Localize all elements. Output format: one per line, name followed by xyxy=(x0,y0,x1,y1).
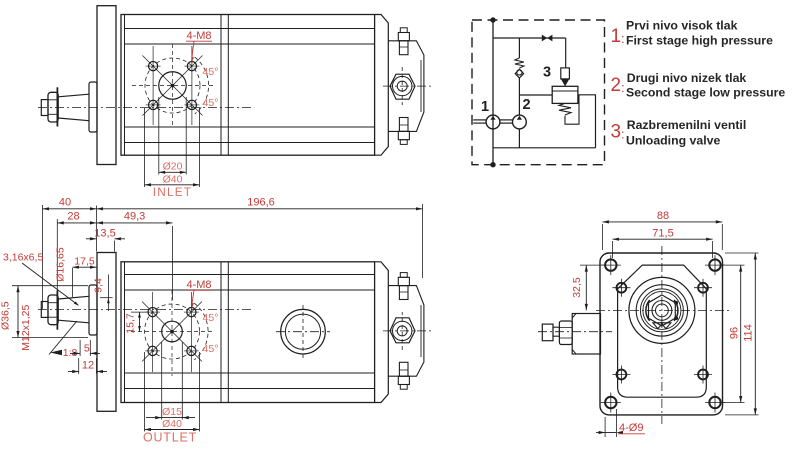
svg-text:49,3: 49,3 xyxy=(124,211,145,223)
svg-text:2: 2 xyxy=(611,75,622,96)
svg-text:196,6: 196,6 xyxy=(247,196,275,208)
svg-text:40: 40 xyxy=(59,196,71,208)
svg-text:45°: 45° xyxy=(203,343,219,355)
svg-text:1: 1 xyxy=(611,26,622,47)
svg-text:3,16x6,5: 3,16x6,5 xyxy=(3,252,43,264)
svg-text:Drugi nivo nizek tlak: Drugi nivo nizek tlak xyxy=(627,71,747,85)
svg-text:17,5: 17,5 xyxy=(74,256,95,268)
svg-text:Ø15: Ø15 xyxy=(162,406,182,418)
svg-text:96: 96 xyxy=(728,327,740,339)
svg-text:Second stage low pressure: Second stage low pressure xyxy=(626,85,785,99)
svg-text:4-M8: 4-M8 xyxy=(186,279,211,291)
svg-text:4-Ø9: 4-Ø9 xyxy=(619,422,643,434)
svg-text:45°: 45° xyxy=(203,66,219,78)
svg-text::: : xyxy=(621,127,625,142)
svg-text:2: 2 xyxy=(522,97,530,113)
svg-text:M12x1,25: M12x1,25 xyxy=(20,304,32,350)
svg-text:71,5: 71,5 xyxy=(652,228,673,240)
svg-text:114: 114 xyxy=(743,324,755,342)
svg-text:First stage high pressure: First stage high pressure xyxy=(626,33,773,47)
svg-text:45°: 45° xyxy=(203,312,219,324)
svg-text:Ø36,5: Ø36,5 xyxy=(0,301,11,330)
svg-text:Ø40: Ø40 xyxy=(163,173,183,185)
svg-text:15,7: 15,7 xyxy=(125,313,137,334)
svg-text:Unloading valve: Unloading valve xyxy=(626,133,720,147)
svg-text:1: 1 xyxy=(481,99,489,115)
svg-text:Ø40: Ø40 xyxy=(162,418,182,430)
svg-text:3: 3 xyxy=(543,65,551,81)
svg-text:28: 28 xyxy=(67,211,79,223)
svg-text:88: 88 xyxy=(657,210,669,222)
svg-text:9,4: 9,4 xyxy=(93,278,105,293)
svg-text:Prvi nivo visok tlak: Prvi nivo visok tlak xyxy=(626,18,738,32)
svg-text::: : xyxy=(621,80,625,95)
svg-text:45°: 45° xyxy=(203,97,219,109)
svg-text:Ø16,65: Ø16,65 xyxy=(55,247,67,282)
svg-text:13,5: 13,5 xyxy=(94,228,115,240)
svg-text:Razbremenilni ventil: Razbremenilni ventil xyxy=(627,118,747,132)
svg-text:OUTLET: OUTLET xyxy=(143,431,197,445)
svg-text:32,5: 32,5 xyxy=(571,277,583,298)
svg-text:3: 3 xyxy=(611,122,622,143)
svg-text:4-M8: 4-M8 xyxy=(186,30,211,42)
svg-text:5: 5 xyxy=(84,342,90,354)
svg-text:INLET: INLET xyxy=(153,185,192,199)
svg-text::: : xyxy=(621,31,625,46)
svg-text:12: 12 xyxy=(82,360,94,372)
svg-text:Ø20: Ø20 xyxy=(163,161,183,173)
